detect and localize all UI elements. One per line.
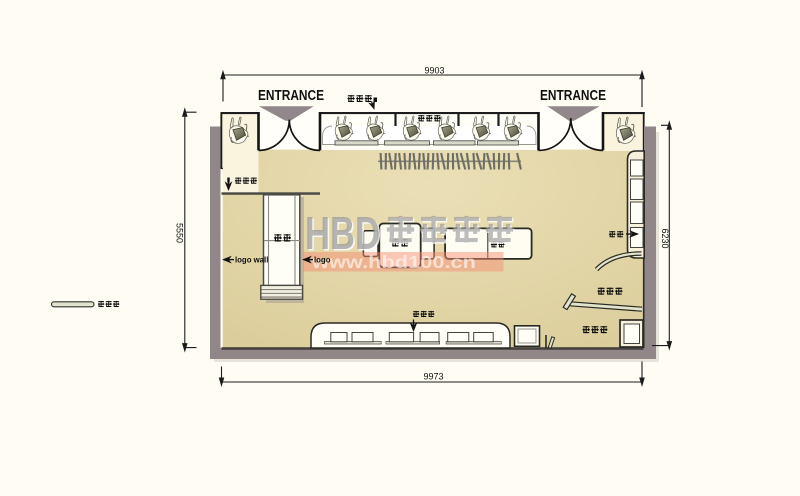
svg-text:5550: 5550 [175,223,185,243]
svg-text:logo: logo [314,256,331,265]
svg-text:9973: 9973 [424,372,444,382]
svg-text:ENTRANCE: ENTRANCE [258,88,324,104]
svg-text:logo wall: logo wall [235,256,268,265]
svg-text:HBD: HBD [305,207,380,259]
svg-text:9903: 9903 [425,66,445,76]
svg-text:ENTRANCE: ENTRANCE [540,88,606,104]
svg-text:6230: 6230 [660,229,670,249]
